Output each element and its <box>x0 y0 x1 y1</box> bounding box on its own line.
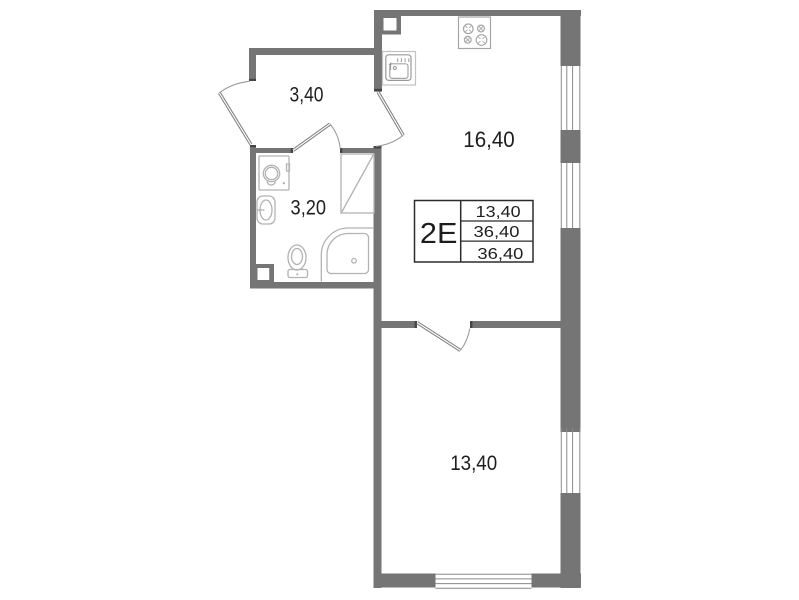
svg-text:13,40: 13,40 <box>450 452 497 475</box>
svg-text:36,40: 36,40 <box>474 224 520 241</box>
svg-text:3,40: 3,40 <box>290 84 324 107</box>
svg-text:36,40: 36,40 <box>477 246 523 263</box>
svg-text:13,40: 13,40 <box>476 204 521 221</box>
svg-text:16,40: 16,40 <box>463 127 515 152</box>
svg-text:3,20: 3,20 <box>291 197 327 220</box>
svg-text:2Е: 2Е <box>420 218 458 250</box>
